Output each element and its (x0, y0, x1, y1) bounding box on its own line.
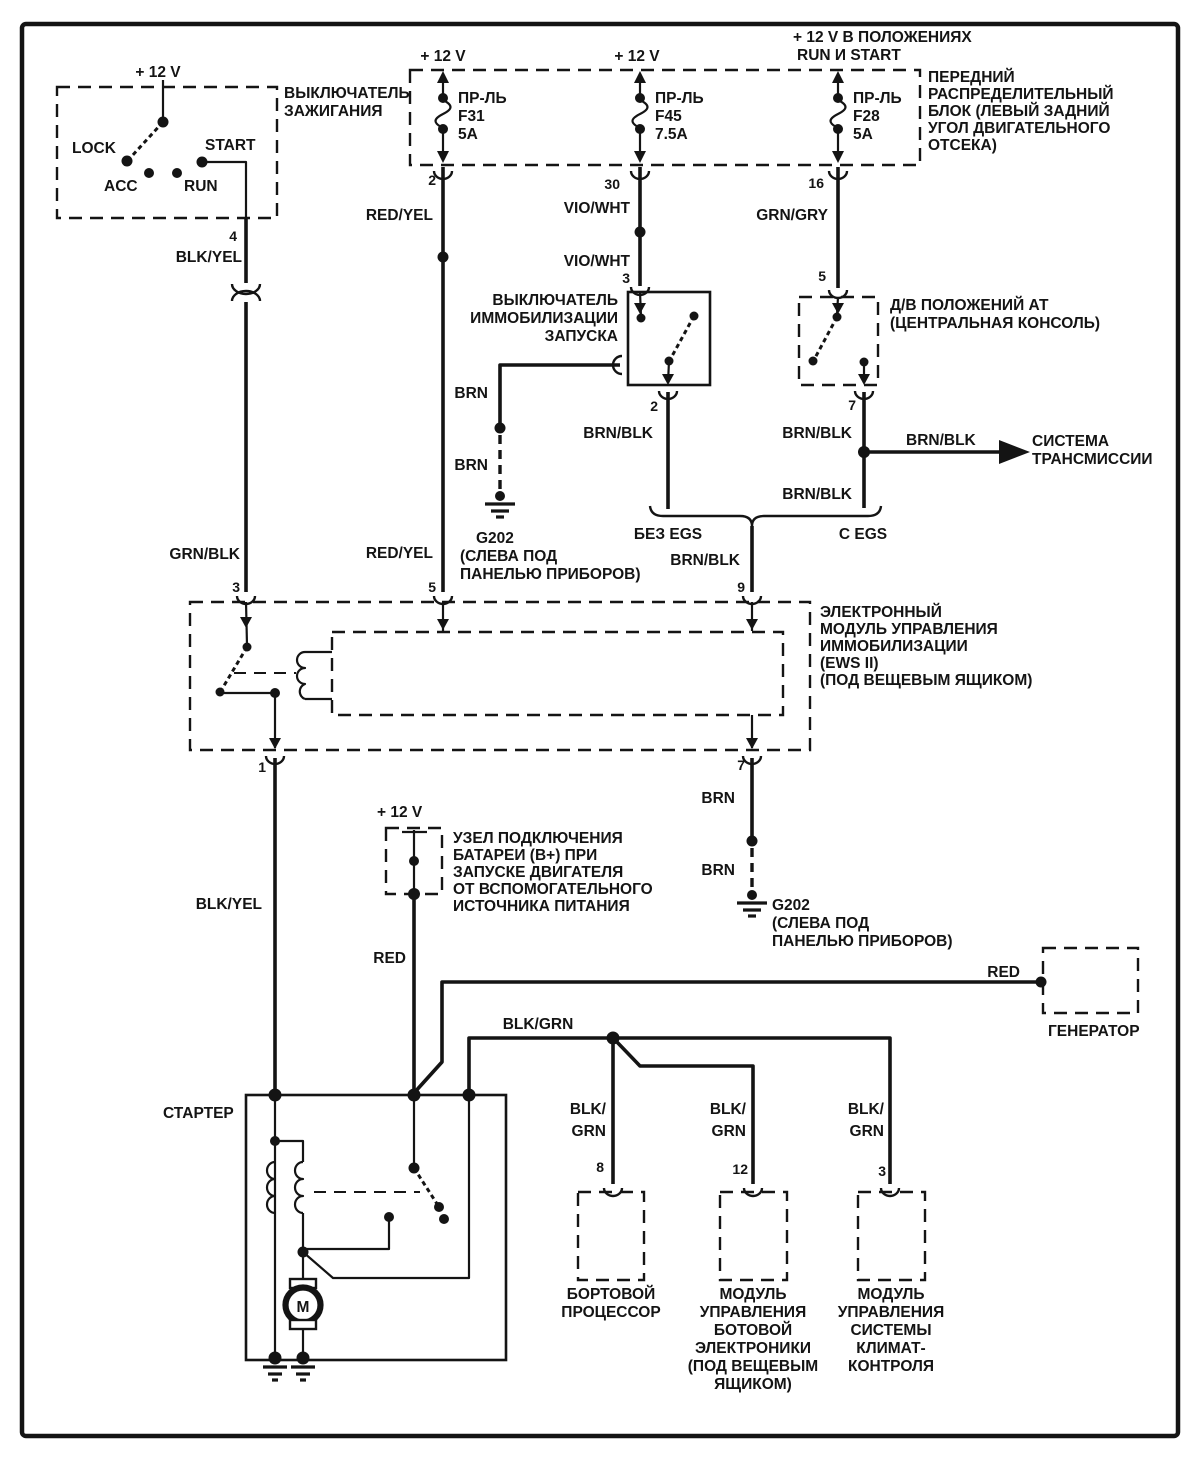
svg-text:ИСТОЧНИКА ПИТАНИЯ: ИСТОЧНИКА ПИТАНИЯ (453, 898, 630, 915)
svg-text:(ПОД ВЕЩЕВЫМ ЯЩИКОМ): (ПОД ВЕЩЕВЫМ ЯЩИКОМ) (820, 672, 1032, 689)
v12-run-start-label: + 12 V В ПОЛОЖЕНИЯХ (793, 29, 972, 46)
svg-text:ИММОБИЛИЗАЦИИ: ИММОБИЛИЗАЦИИ (820, 638, 968, 655)
svg-text:ЭЛЕКТРОНИКИ: ЭЛЕКТРОНИКИ (695, 1340, 811, 1357)
ignition-switch-blade (131, 122, 163, 157)
svg-text:F31: F31 (458, 108, 485, 125)
svg-text:BLK/: BLK/ (848, 1101, 885, 1118)
svg-text:(EWS II): (EWS II) (820, 655, 879, 672)
label-c-egs: C EGS (839, 526, 887, 543)
pin-3-hvac: 3 (878, 1163, 886, 1179)
motor-letter: M (297, 1299, 310, 1316)
wire-red-yel: RED/YEL RED/YEL 5 (366, 167, 452, 604)
svg-text:BLK/GRN: BLK/GRN (503, 1016, 574, 1033)
svg-text:VIO/WHT: VIO/WHT (564, 200, 631, 217)
svg-text:BRN: BRN (701, 790, 735, 807)
svg-text:ПАНЕЛЬЮ ПРИБОРОВ): ПАНЕЛЬЮ ПРИБОРОВ) (460, 566, 641, 583)
svg-text:ИММОБИЛИЗАЦИИ: ИММОБИЛИЗАЦИИ (470, 310, 618, 327)
pin-8: 8 (596, 1159, 604, 1175)
immobilizer-blade (671, 316, 694, 358)
svg-text:ОТ ВСПОМОГАТЕЛЬНОГО: ОТ ВСПОМОГАТЕЛЬНОГО (453, 881, 653, 898)
ews-label: ЭЛЕКТРОННЫЙ (820, 603, 942, 621)
brn-blk-network: BRN/BLK BRN/BLK BRN/BLK СИСТЕМА ТРАНСМИС… (583, 392, 1152, 604)
svg-text:(СЛЕВА ПОД: (СЛЕВА ПОД (460, 548, 557, 565)
svg-text:7.5A: 7.5A (655, 126, 688, 143)
svg-text:ЗАПУСКА: ЗАПУСКА (545, 328, 618, 345)
contact-run (172, 168, 182, 178)
starter: СТАРТЕР M (163, 1089, 506, 1381)
module-onboard-processor: БОРТОВОЙ ПРОЦЕССОР (561, 1192, 660, 1321)
svg-text:BRN: BRN (454, 385, 488, 402)
wire-blk-yel: 4 BLK/YEL GRN/BLK 3 (169, 218, 260, 604)
svg-text:BRN/BLK: BRN/BLK (782, 425, 853, 442)
module-climate-control: МОДУЛЬ УПРАВЛЕНИЯ СИСТЕМЫ КЛИМАТ- КОНТРО… (838, 1192, 944, 1375)
transmission-label: СИСТЕМА (1032, 433, 1109, 450)
g202-left-label: G202 (476, 530, 514, 547)
label-acc: ACC (104, 178, 138, 195)
ews-relay-coil (297, 652, 305, 699)
label-run: RUN (184, 178, 218, 195)
svg-text:ЗАПУСКЕ ДВИГАТЕЛЯ: ЗАПУСКЕ ДВИГАТЕЛЯ (453, 864, 623, 881)
pin-16: 16 (808, 175, 824, 191)
ews-outer-box (190, 602, 810, 750)
svg-text:(ПОД ВЕЩЕВЫМ: (ПОД ВЕЩЕВЫМ (688, 1358, 818, 1375)
pin-9: 9 (737, 579, 745, 595)
svg-text:5A: 5A (458, 126, 478, 143)
at-switch-title: Д/В ПОЛОЖЕНИЙ АТ (890, 296, 1049, 314)
svg-text:BLK/: BLK/ (570, 1101, 607, 1118)
battery-node-label: УЗЕЛ ПОДКЛЮЧЕНИЯ (453, 830, 623, 847)
svg-text:BRN: BRN (454, 457, 488, 474)
wire-label-grn-blk: GRN/BLK (169, 546, 240, 563)
svg-text:УПРАВЛЕНИЯ: УПРАВЛЕНИЯ (700, 1304, 806, 1321)
svg-text:BRN/BLK: BRN/BLK (782, 486, 853, 503)
starter-contact-blade (414, 1168, 439, 1207)
ground-g202-right-icon (737, 903, 767, 916)
svg-text:ТРАНСМИССИИ: ТРАНСМИССИИ (1032, 451, 1153, 468)
v12-label-ignition: + 12 V (135, 64, 181, 81)
egs-brace (650, 506, 881, 526)
ews-inner-box (332, 632, 783, 715)
svg-text:ПР-ЛЬ: ПР-ЛЬ (655, 90, 704, 107)
v12-label-f31: + 12 V (420, 48, 466, 65)
wiring-diagram: + 12 V LOCK ACC RUN START ВЫКЛЮЧАТЕЛЬ ЗА… (0, 0, 1200, 1457)
wire-blk-yel-starter: BLK/YEL (196, 758, 275, 1095)
svg-text:УГОЛ ДВИГАТЕЛЬНОГО: УГОЛ ДВИГАТЕЛЬНОГО (928, 120, 1110, 137)
svg-text:ЯЩИКОМ): ЯЩИКОМ) (714, 1376, 792, 1393)
ignition-switch-title: ВЫКЛЮЧАТЕЛЬ (284, 85, 410, 102)
svg-text:ПР-ЛЬ: ПР-ЛЬ (853, 90, 902, 107)
wire-red: RED RED ГЕНЕРАТОР (373, 894, 1139, 1095)
transmission-arrow (999, 440, 1030, 464)
battery-jump-node: + 12 V УЗЕЛ ПОДКЛЮЧЕНИЯ БАТАРЕИ (B+) ПРИ… (377, 804, 653, 915)
svg-text:RED: RED (373, 950, 406, 967)
ground-g202-left-icon (485, 504, 515, 517)
svg-text:RED/YEL: RED/YEL (366, 545, 433, 562)
svg-text:УПРАВЛЕНИЯ: УПРАВЛЕНИЯ (838, 1304, 944, 1321)
svg-text:GRN/GRY: GRN/GRY (756, 207, 828, 224)
svg-text:СИСТЕМЫ: СИСТЕМЫ (850, 1322, 931, 1339)
module-body-electronics: МОДУЛЬ УПРАВЛЕНИЯ БОТОВОЙ ЭЛЕКТРОНИКИ (П… (688, 1192, 818, 1393)
solenoid-coil-2 (295, 1162, 303, 1213)
starter-ground-motor-icon (291, 1367, 315, 1380)
svg-text:БОТОВОЙ: БОТОВОЙ (714, 1321, 792, 1339)
pin-4: 4 (229, 228, 237, 244)
svg-text:ПАНЕЛЬЮ ПРИБОРОВ): ПАНЕЛЬЮ ПРИБОРОВ) (772, 933, 953, 950)
starter-label: СТАРТЕР (163, 1105, 234, 1122)
generator-label: ГЕНЕРАТОР (1048, 1023, 1140, 1040)
label-bez-egs: БЕЗ EGS (634, 526, 702, 543)
wire-blk-grn: BLK/GRN BLK/ GRN BLK/ GRN BLK/ GRN 8 12 … (469, 1016, 899, 1196)
svg-text:МОДУЛЬ: МОДУЛЬ (857, 1286, 924, 1303)
ews-relay-blade (222, 647, 247, 689)
pin-12: 12 (732, 1161, 748, 1177)
fuse-f45: ПР-ЛЬ F45 7.5A (633, 71, 704, 163)
front-distribution-box: + 12 V + 12 V + 12 V В ПОЛОЖЕНИЯХ RUN И … (410, 29, 1114, 192)
solenoid-coil-1 (267, 1162, 275, 1213)
wire-brn-g202-right: BRN BRN G202 (СЛЕВА ПОД ПАНЕЛЬЮ ПРИБОРОВ… (701, 758, 952, 950)
pin-7: 7 (737, 757, 745, 773)
svg-text:BRN: BRN (701, 862, 735, 879)
svg-text:ЗАЖИГАНИЯ: ЗАЖИГАНИЯ (284, 103, 383, 120)
svg-text:БЛОК (ЛЕВЫЙ ЗАДНИЙ: БЛОК (ЛЕВЫЙ ЗАДНИЙ (928, 102, 1110, 120)
pin-1: 1 (258, 759, 266, 775)
svg-text:БАТАРЕИ (B+) ПРИ: БАТАРЕИ (B+) ПРИ (453, 847, 597, 864)
pin-5: 5 (428, 579, 436, 595)
svg-text:КОНТРОЛЯ: КОНТРОЛЯ (848, 1358, 934, 1375)
svg-text:(СЛЕВА ПОД: (СЛЕВА ПОД (772, 915, 869, 932)
svg-text:BRN/BLK: BRN/BLK (906, 432, 977, 449)
svg-text:BRN/BLK: BRN/BLK (583, 425, 654, 442)
at-switch-blade (815, 317, 837, 358)
label-start: START (205, 137, 256, 154)
immobilizer-title: ВЫКЛЮЧАТЕЛЬ (492, 292, 618, 309)
ignition-switch: + 12 V LOCK ACC RUN START ВЫКЛЮЧАТЕЛЬ ЗА… (57, 64, 410, 218)
v12-label-f45: + 12 V (614, 48, 660, 65)
svg-text:BLK/YEL: BLK/YEL (196, 896, 262, 913)
svg-text:(ЦЕНТРАЛЬНАЯ КОНСОЛЬ): (ЦЕНТРАЛЬНАЯ КОНСОЛЬ) (890, 315, 1100, 332)
pin-30: 30 (604, 176, 620, 192)
svg-text:F45: F45 (655, 108, 682, 125)
svg-text:5A: 5A (853, 126, 873, 143)
pin-2-immo: 2 (650, 398, 658, 414)
fuse-box-label: ПЕРЕДНИЙ (928, 68, 1015, 86)
contact-lock (122, 156, 133, 167)
svg-text:МОДУЛЬ: МОДУЛЬ (719, 1286, 786, 1303)
svg-text:RED: RED (987, 964, 1020, 981)
svg-text:ПРОЦЕССОР: ПРОЦЕССОР (561, 1304, 660, 1321)
svg-text:VIO/WHT: VIO/WHT (564, 253, 631, 270)
svg-text:КЛИМАТ-: КЛИМАТ- (856, 1340, 925, 1357)
page-border (22, 24, 1178, 1436)
wire-grn-gry: GRN/GRY 5 (756, 167, 847, 298)
label-lock: LOCK (72, 140, 117, 157)
svg-text:RED/YEL: RED/YEL (366, 207, 433, 224)
svg-text:BLK/: BLK/ (710, 1101, 747, 1118)
generator-box (1043, 948, 1138, 1013)
wire-label-blk-yel: BLK/YEL (176, 249, 242, 266)
svg-text:F28: F28 (853, 108, 880, 125)
contact-acc (144, 168, 154, 178)
svg-text:ПР-ЛЬ: ПР-ЛЬ (458, 90, 507, 107)
pin-7-at: 7 (848, 397, 856, 413)
svg-text:БОРТОВОЙ: БОРТОВОЙ (567, 1285, 655, 1303)
wiring-diagram-page: + 12 V LOCK ACC RUN START ВЫКЛЮЧАТЕЛЬ ЗА… (0, 0, 1200, 1457)
svg-text:GRN: GRN (712, 1123, 746, 1140)
svg-text:МОДУЛЬ УПРАВЛЕНИЯ: МОДУЛЬ УПРАВЛЕНИЯ (820, 621, 998, 638)
pin-2: 2 (428, 172, 436, 188)
at-position-switch: Д/В ПОЛОЖЕНИЙ АТ (ЦЕНТРАЛЬНАЯ КОНСОЛЬ) 7 (799, 296, 1100, 413)
fuse-f31: ПР-ЛЬ F31 5A (436, 71, 507, 163)
pin-3: 3 (232, 579, 240, 595)
starter-box (246, 1095, 506, 1360)
pin-3-immo: 3 (622, 270, 630, 286)
v12-label-battery: + 12 V (377, 804, 423, 821)
svg-text:GRN: GRN (850, 1123, 884, 1140)
starter-ground-left-icon (263, 1367, 287, 1380)
svg-text:RUN И START: RUN И START (797, 47, 901, 64)
svg-text:BRN/BLK: BRN/BLK (670, 552, 741, 569)
g202-right-label: G202 (772, 897, 810, 914)
fuse-f28: ПР-ЛЬ F28 5A (831, 71, 902, 163)
pin-5-at: 5 (818, 268, 826, 284)
svg-text:ОТСЕКА): ОТСЕКА) (928, 137, 997, 154)
ews-module: ЭЛЕКТРОННЫЙ МОДУЛЬ УПРАВЛЕНИЯ ИММОБИЛИЗА… (190, 602, 1032, 775)
svg-text:РАСПРЕДЕЛИТЕЛЬНЫЙ: РАСПРЕДЕЛИТЕЛЬНЫЙ (928, 85, 1114, 103)
svg-text:GRN: GRN (572, 1123, 606, 1140)
